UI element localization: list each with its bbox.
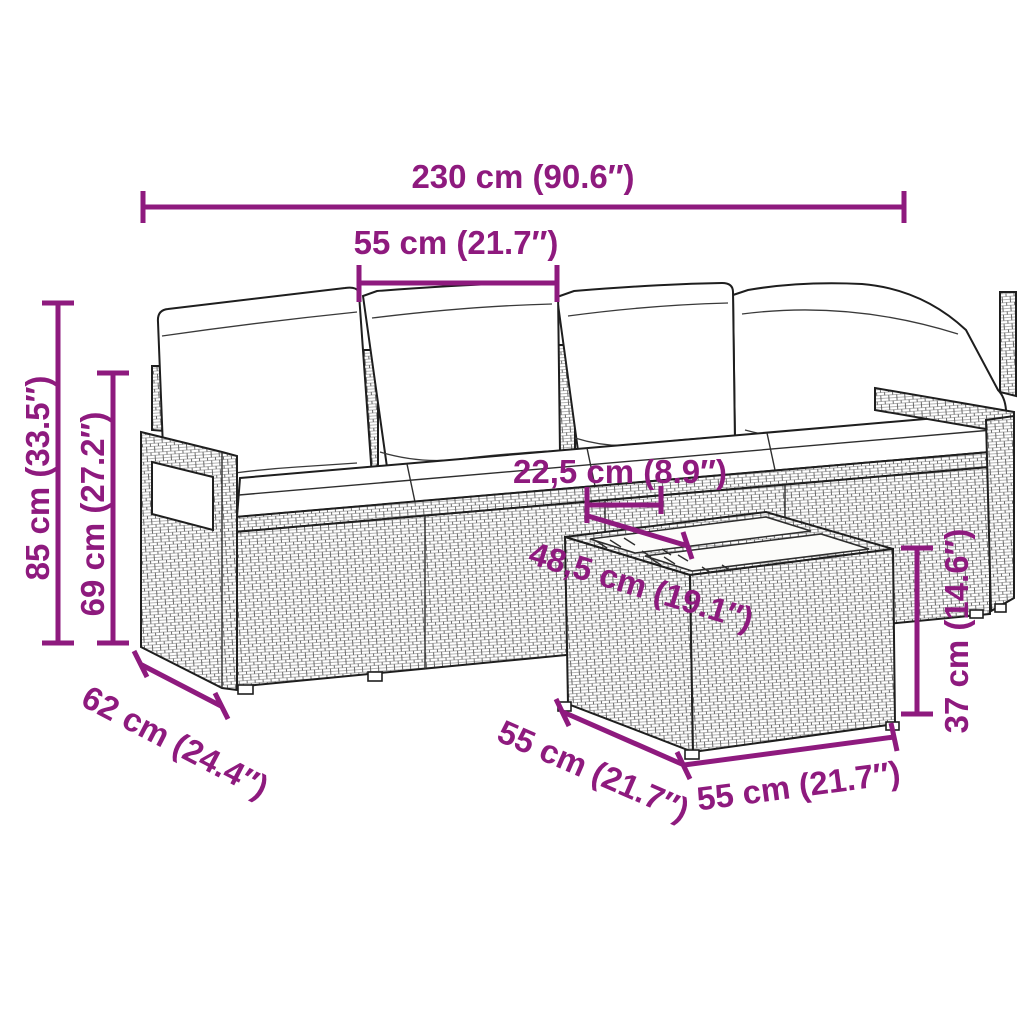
dim-seat-width-label: 55 cm (21.7″) xyxy=(354,224,559,261)
table-foot-front xyxy=(685,750,699,759)
dim-total-width-line xyxy=(143,191,904,223)
table xyxy=(558,512,899,759)
dim-seat-depth-label: 62 cm (24.4″) xyxy=(76,678,275,805)
dim-backrest-height-label: 69 cm (27.2″) xyxy=(74,412,111,617)
dim-total-width: 230 cm (90.6″) xyxy=(143,158,904,223)
dim-total-width-label: 230 cm (90.6″) xyxy=(411,158,634,195)
right-armrest-panel xyxy=(986,416,1014,611)
sofa-foot-2 xyxy=(368,672,382,681)
diagram-canvas: 230 cm (90.6″) 55 cm (21.7″) 85 cm (33.5… xyxy=(0,0,1024,1024)
dim-table-offset-label: 22,5 cm (8.9″) xyxy=(513,453,727,490)
left-armrest xyxy=(141,432,237,690)
dim-table-height-label: 37 cm (14.6″) xyxy=(938,529,975,734)
table-right-face xyxy=(690,549,895,752)
dim-total-height-label: 85 cm (33.5″) xyxy=(19,376,56,581)
diagram-page: 230 cm (90.6″) 55 cm (21.7″) 85 cm (33.5… xyxy=(0,0,1024,1024)
dim-backrest-height: 69 cm (27.2″) xyxy=(74,373,129,643)
sofa-foot-1 xyxy=(238,685,253,694)
back-pole-right xyxy=(1000,292,1016,396)
dim-table-front-length-label: 55 cm (21.7″) xyxy=(695,754,903,818)
dim-total-height: 85 cm (33.5″) xyxy=(19,303,74,643)
sofa-foot-4 xyxy=(995,604,1006,612)
